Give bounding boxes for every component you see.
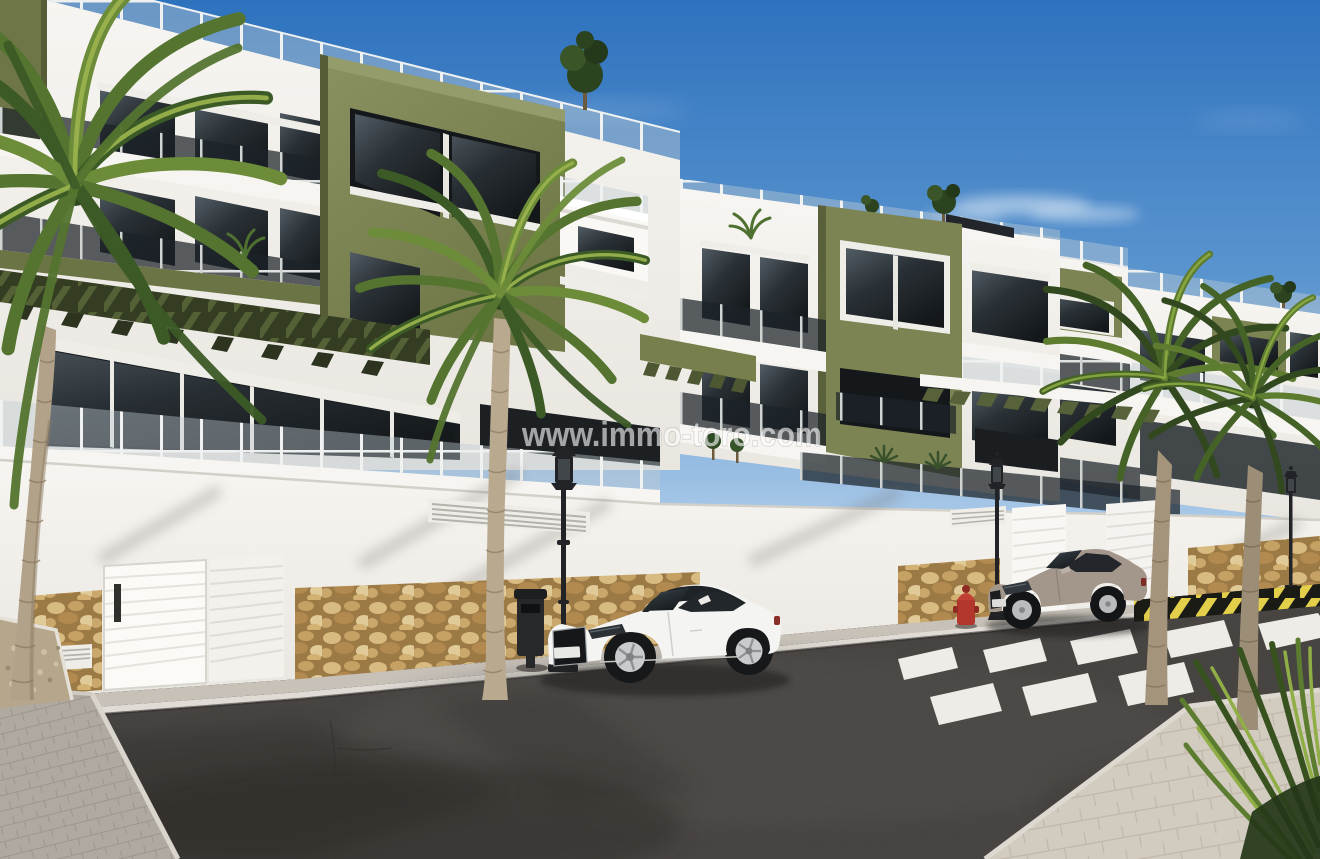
wall-letterbox: [114, 584, 121, 622]
garage-door: [209, 555, 284, 682]
garage-door: [104, 560, 206, 690]
property-render-image: www.immo-toro.com: [0, 0, 1320, 859]
watermark: www.immo-toro.com: [521, 416, 822, 454]
